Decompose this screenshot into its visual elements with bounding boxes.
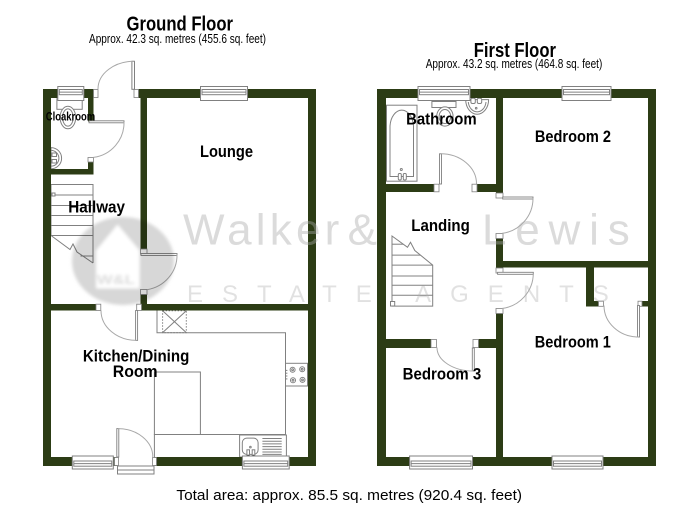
svg-text:Landing: Landing bbox=[411, 216, 470, 235]
svg-text:Bathroom: Bathroom bbox=[406, 110, 477, 129]
svg-text:Bedroom 1: Bedroom 1 bbox=[535, 333, 611, 352]
svg-text:Hallway: Hallway bbox=[68, 197, 125, 216]
svg-text:Bedroom 2: Bedroom 2 bbox=[535, 127, 611, 146]
svg-text:Bedroom 3: Bedroom 3 bbox=[403, 364, 482, 383]
svg-text:Total area: approx. 85.5 sq. m: Total area: approx. 85.5 sq. metres (920… bbox=[176, 487, 522, 504]
svg-text:&: & bbox=[348, 206, 377, 255]
svg-text:Lounge: Lounge bbox=[200, 142, 253, 161]
svg-text:Cloakroom: Cloakroom bbox=[46, 112, 95, 124]
svg-text:ESTATE AGENTS: ESTATE AGENTS bbox=[187, 281, 628, 308]
svg-text:Approx. 42.3 sq. metres (455.6: Approx. 42.3 sq. metres (455.6 sq. feet) bbox=[89, 31, 266, 46]
svg-text:Room: Room bbox=[113, 362, 158, 381]
svg-text:Walker: Walker bbox=[183, 206, 343, 255]
svg-text:Approx. 43.2 sq. metres (464.8: Approx. 43.2 sq. metres (464.8 sq. feet) bbox=[426, 56, 603, 71]
svg-text:Lewis: Lewis bbox=[482, 206, 639, 255]
svg-text:W&L: W&L bbox=[97, 272, 135, 287]
